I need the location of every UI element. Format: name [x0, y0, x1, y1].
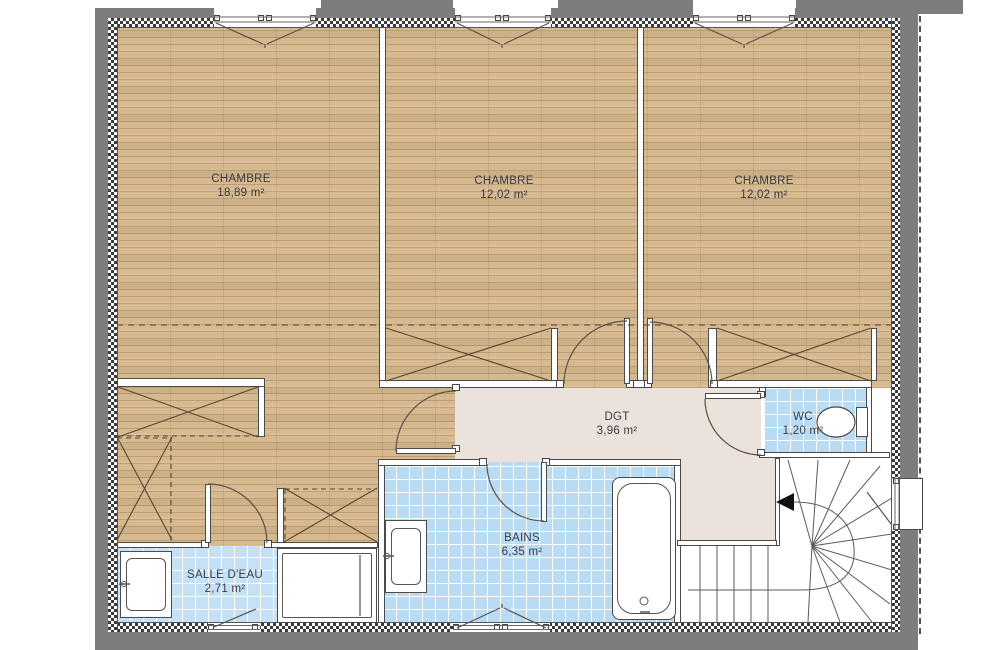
exterior-wall-bottom: [95, 632, 918, 650]
door-leaf-bains: [541, 462, 547, 522]
window-hinge: [893, 524, 899, 530]
door-jamb: [264, 540, 272, 548]
window-hinge: [745, 15, 751, 21]
room-area: 1,20 m²: [763, 424, 843, 438]
room-area: 12,02 m²: [434, 188, 574, 202]
room-name: SALLE D'EAU: [155, 568, 295, 582]
window-stairwell-sill: [899, 478, 923, 530]
door-leaf-salle-deau: [205, 484, 211, 543]
exterior-wall-right: [900, 0, 918, 650]
wall-bed2-bed3: [637, 27, 644, 388]
door-leaf-bedroom3: [647, 318, 653, 384]
window-hinge: [252, 624, 258, 630]
room-area: 18,89 m²: [171, 186, 311, 200]
room-area: 6,35 m²: [452, 545, 592, 559]
wall-closet5-right: [871, 328, 877, 381]
wall-wc-bottom: [759, 452, 890, 458]
window-hinge: [737, 15, 743, 21]
room-label-chambre-3: CHAMBRE 12,02 m²: [694, 174, 834, 202]
window-hinge: [789, 15, 795, 21]
window-hinge: [266, 15, 272, 21]
shower-inner: [282, 553, 372, 618]
exterior-wall-top-block-2: [558, 0, 693, 18]
wall-closet3-left: [277, 488, 284, 548]
room-label-bains: BAINS 6,35 m²: [452, 531, 592, 559]
wall-bains-top-left: [378, 459, 487, 466]
window-hinge: [310, 15, 316, 21]
room-label-chambre-2: CHAMBRE 12,02 m²: [434, 174, 574, 202]
door-leaf-dressing: [396, 448, 456, 454]
window-hinge: [455, 15, 461, 21]
wall-sde-top-left: [117, 542, 207, 548]
wall-under-bed3-wc-top: [712, 380, 872, 388]
window-hinge: [502, 624, 508, 630]
room-label-wc: WC 1,20 m²: [763, 410, 843, 438]
window-hinge: [545, 15, 551, 21]
wall-stair-dgt: [775, 458, 780, 546]
window-hinge: [214, 15, 220, 21]
wall-bed1-bed2: [379, 27, 386, 388]
room-name: CHAMBRE: [694, 174, 834, 188]
roof-overhang-dashed-line: [919, 16, 921, 634]
floor-plan: CHAMBRE 18,89 m² CHAMBRE 12,02 m² CHAMBR…: [0, 0, 1000, 650]
exterior-wall-left: [95, 8, 108, 650]
floor-bedrooms: [117, 27, 892, 388]
window-hinge: [208, 624, 214, 630]
floor-hallway-dgt-lower: [681, 458, 775, 540]
bathtub-inner: [617, 483, 671, 614]
room-name: BAINS: [452, 531, 592, 545]
room-name: CHAMBRE: [171, 172, 311, 186]
room-area: 3,96 m²: [557, 424, 677, 438]
wall-closet5-left: [708, 328, 717, 388]
window-hinge: [893, 478, 899, 484]
window-hinge: [693, 15, 699, 21]
wall-closet1-top: [117, 378, 265, 387]
window-hinge: [495, 15, 501, 21]
door-jamb: [710, 380, 718, 388]
wall-closet4-right: [551, 328, 558, 388]
room-label-dgt: DGT 3,96 m²: [557, 410, 677, 438]
window-bedroom1: [214, 8, 316, 27]
bains-sink-basin: [391, 528, 421, 585]
toilet-tank: [856, 407, 868, 437]
window-hinge: [503, 15, 509, 21]
room-label-chambre-1: CHAMBRE 18,89 m²: [171, 172, 311, 200]
room-name: DGT: [557, 410, 677, 424]
room-area: 2,71 m²: [155, 582, 295, 596]
door-jamb: [479, 458, 487, 466]
window-hinge: [494, 624, 500, 630]
door-jamb: [556, 380, 564, 388]
room-name: CHAMBRE: [434, 174, 574, 188]
room-label-salle-deau: SALLE D'EAU 2,71 m²: [155, 568, 295, 596]
door-leaf-bedroom2: [624, 318, 630, 384]
wall-under-bed2: [379, 380, 564, 388]
wall-bains-left: [378, 459, 385, 623]
wall-stair-top: [677, 540, 777, 546]
insulation-band-left: [108, 18, 117, 632]
window-hinge: [543, 624, 549, 630]
window-hinge: [453, 624, 459, 630]
door-jamb: [757, 449, 765, 456]
room-name: WC: [763, 410, 843, 424]
exterior-wall-top-block-1: [321, 0, 453, 18]
room-area: 12,02 m²: [694, 188, 834, 202]
insulation-band-right: [892, 18, 900, 632]
door-jamb: [452, 384, 460, 391]
door-leaf-wc: [705, 393, 761, 399]
window-hinge: [258, 15, 264, 21]
wall-bains-top-right: [543, 459, 681, 466]
window-bedroom3: [693, 8, 795, 27]
